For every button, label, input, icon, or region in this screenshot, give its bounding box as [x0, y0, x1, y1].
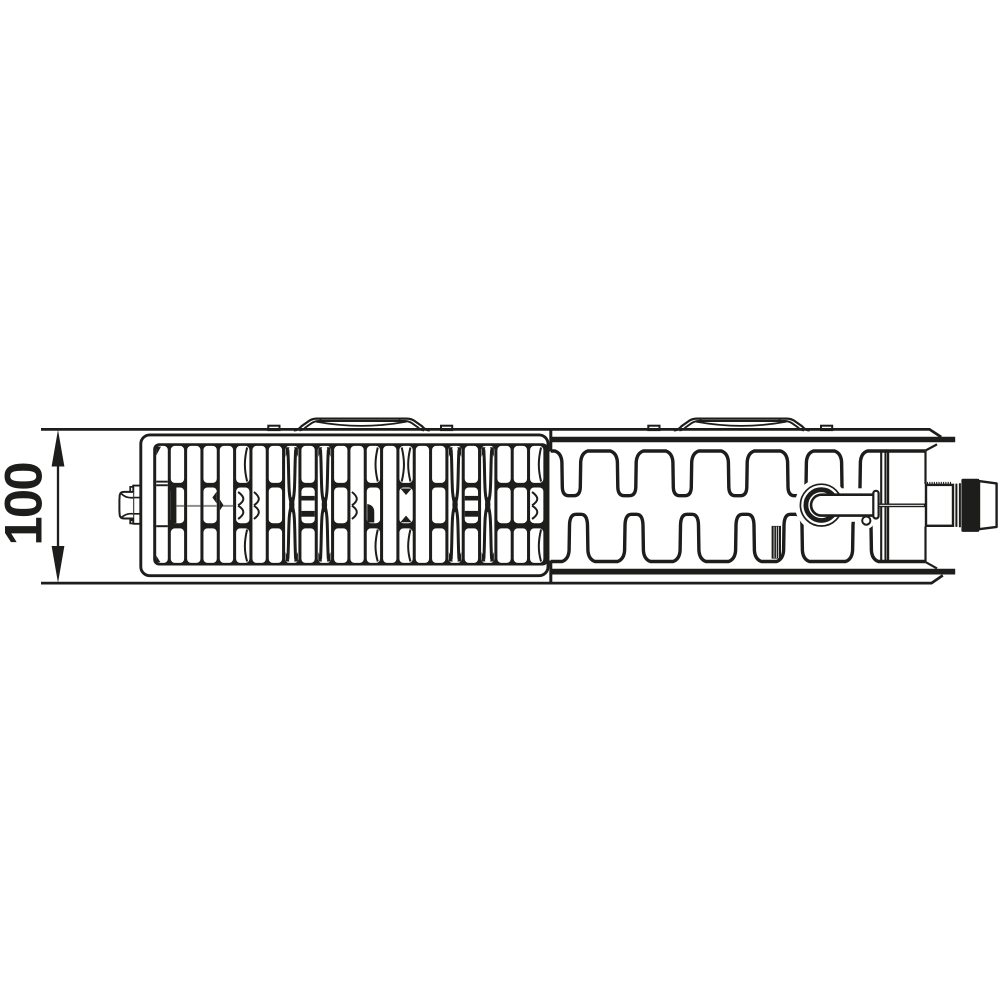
svg-text:100: 100 [0, 463, 54, 546]
